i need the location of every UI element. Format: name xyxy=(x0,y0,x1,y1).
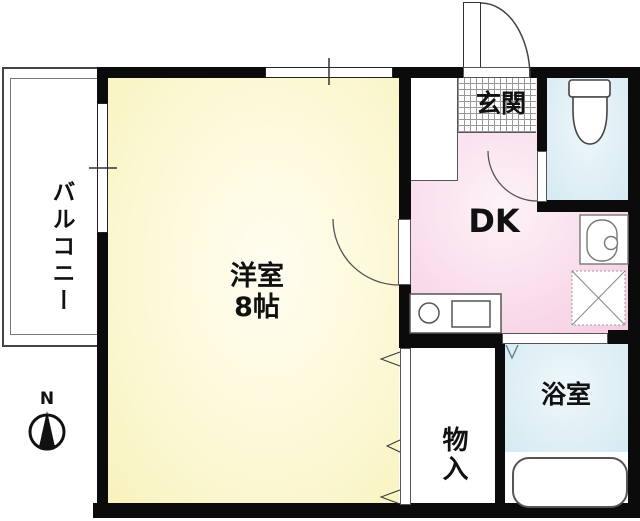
closet-chevron-bottom-icon xyxy=(381,490,400,504)
washbasin-icon xyxy=(580,215,628,264)
entrance-label: 玄関 xyxy=(462,90,540,119)
storage-label: 物入 xyxy=(427,402,467,507)
western-room-name: 洋室 xyxy=(197,261,317,292)
western-room-size: 8帖 xyxy=(197,292,317,323)
washing-machine-pan-icon xyxy=(572,271,625,325)
entrance-door-swing-icon xyxy=(481,3,530,77)
balcony-label: バルコニー xyxy=(30,152,74,342)
closet-chevron-top-icon xyxy=(381,352,400,366)
bathtub-icon xyxy=(513,458,627,507)
western-room-label: 洋室 8帖 xyxy=(197,261,317,323)
room-door-swing-icon xyxy=(333,219,399,285)
closet-chevron-mid-icon xyxy=(387,440,400,452)
dk-label: DK xyxy=(464,203,524,240)
kitchen-counter-icon xyxy=(410,294,501,333)
compass-north-label: N xyxy=(35,390,59,410)
toilet-door-swing-icon xyxy=(488,151,537,201)
toilet-icon xyxy=(569,80,610,144)
compass-north-icon xyxy=(30,411,64,451)
bath-door-icon xyxy=(506,345,518,358)
fixtures-layer xyxy=(0,0,640,521)
bath-label: 浴室 xyxy=(526,381,606,410)
floor-plan: バルコニー 洋室 8帖 玄関 DK 物入 浴室 N xyxy=(0,0,640,521)
